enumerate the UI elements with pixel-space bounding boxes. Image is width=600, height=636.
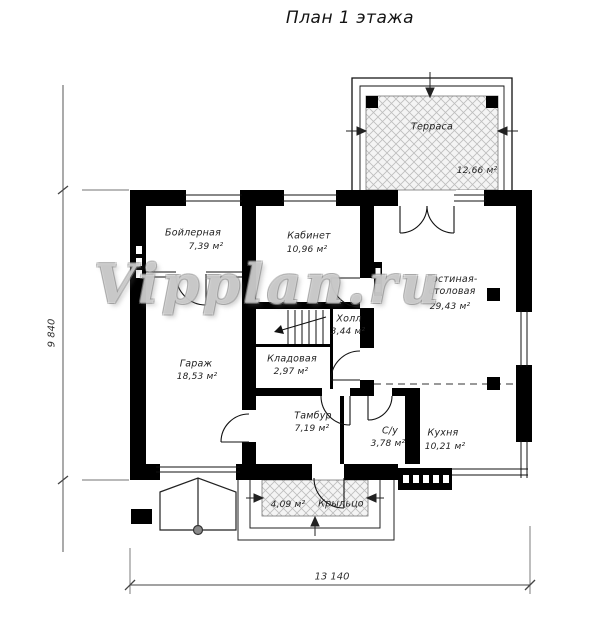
terrace-french-doors — [400, 206, 454, 233]
room-label-office-area: 10,96 м² — [287, 245, 328, 255]
dimension-height-label: 9 840 — [47, 319, 58, 348]
room-label-hall-area: 3,44 м² — [331, 327, 366, 337]
room-label-boiler-area: 7,39 м² — [189, 242, 224, 252]
room-label-storage-area: 2,97 м² — [274, 367, 309, 377]
dimension-width-label: 13 140 — [315, 572, 350, 583]
room-label-living-area: 29,43 м² — [430, 302, 471, 312]
room-label-hall-name: Холл — [336, 314, 361, 325]
garage-door-symbol — [160, 478, 236, 535]
boiler-door — [176, 274, 206, 305]
room-label-office-name: Кабинет — [287, 231, 331, 242]
room-label-wc-name: С/у — [382, 426, 398, 437]
chimney-block — [131, 509, 152, 524]
room-label-tambour-name: Тамбур — [294, 411, 332, 422]
garage-tambour-door — [221, 414, 249, 442]
stairs-direction-arrow — [274, 325, 284, 334]
stairs — [274, 310, 326, 344]
flue-shaft — [374, 262, 382, 296]
boiler-partition — [146, 272, 242, 277]
hall-living-door — [331, 351, 360, 380]
radiator — [398, 468, 452, 490]
room-label-tambour-area: 7,19 м² — [295, 424, 330, 434]
wc-door — [368, 396, 392, 420]
wc-partition — [340, 396, 344, 464]
floor-plan-drawing — [0, 0, 600, 636]
room-label-wc-area: 3,78 м² — [371, 439, 406, 449]
window-living-right — [516, 310, 532, 367]
room-label-porch-name: Крыльцо — [318, 499, 364, 510]
room-label-kitchen-area: 10,21 м² — [425, 442, 466, 452]
room-label-living-name: Гостиная-столовая — [418, 274, 486, 298]
storage-partition — [256, 344, 332, 347]
room-label-terrace-area: 12,66 м² — [457, 166, 498, 176]
room-label-storage-name: Кладовая — [267, 354, 317, 365]
room-label-terrace-name: Терраса — [411, 122, 453, 133]
room-label-garage-name: Гараж — [180, 359, 213, 370]
window-living-top — [454, 190, 486, 206]
room-label-boiler-name: Бойлерная — [165, 228, 221, 239]
floor-plan-sheet: План 1 этажа — [0, 0, 600, 636]
left-wall-vents — [136, 246, 142, 278]
window-boiler — [184, 190, 242, 206]
room-label-porch-area: 4,09 м² — [271, 500, 306, 510]
columns — [487, 288, 500, 390]
room-label-garage-area: 18,53 м² — [177, 372, 218, 382]
page-title: План 1 этажа — [100, 8, 600, 28]
window-office — [282, 190, 338, 206]
room-label-kitchen-name: Кухня — [428, 428, 459, 439]
